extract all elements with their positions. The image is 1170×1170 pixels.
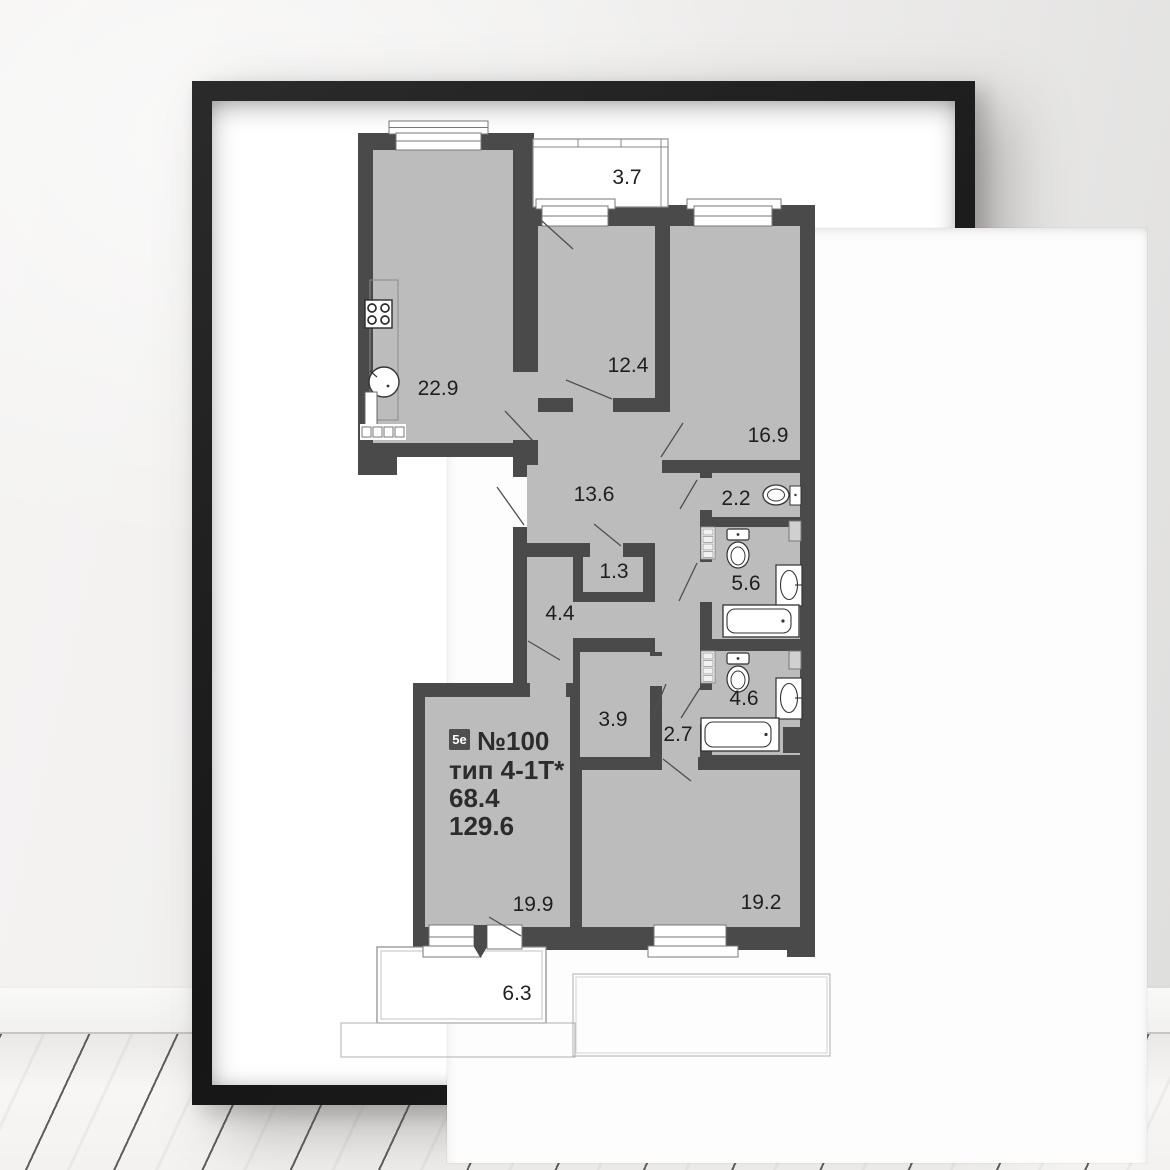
stove-icon <box>365 300 392 328</box>
area-living: 68.4 <box>449 783 500 813</box>
washbasin-icon <box>776 565 802 606</box>
vent-duct <box>789 651 801 669</box>
room-label-wardrobe: 3.9 <box>598 708 627 731</box>
kitchen-cabinets-icon <box>360 424 406 440</box>
floor-plan: 3.7 22.9 12.4 16.9 13.6 2.2 1.3 5.6 4.4 … <box>0 0 1170 1170</box>
toilet-icon <box>727 529 749 568</box>
washing-machine-icon <box>701 651 715 683</box>
room-label-bedroom-1: 12.4 <box>608 354 649 377</box>
room-label-bedroom-3: 19.9 <box>513 893 554 916</box>
room-label-storage: 1.3 <box>599 560 628 583</box>
vent-duct <box>789 521 801 541</box>
room-label-living-room: 19.2 <box>741 891 782 914</box>
room-label-bathroom-2: 4.6 <box>729 687 758 710</box>
shaft <box>783 727 801 753</box>
washing-machine-icon <box>701 527 715 559</box>
apartment-type: тип 4-1Т* <box>449 755 565 785</box>
floor-badge-label: 5е <box>452 732 466 747</box>
room-label-balcony-bottom: 6.3 <box>502 982 531 1005</box>
room-label-bedroom-2: 16.9 <box>748 424 789 447</box>
room-label-bathroom-1: 5.6 <box>731 572 760 595</box>
fridge-icon <box>365 392 377 428</box>
balcony-top <box>533 139 668 207</box>
wc-sink-icon <box>763 485 801 505</box>
bathtub-icon <box>701 718 779 751</box>
area-total: 129.6 <box>449 811 514 841</box>
room-label-hallway: 13.6 <box>574 483 615 506</box>
bathtub-icon <box>723 605 799 637</box>
washbasin-icon <box>776 678 802 719</box>
room-label-corridor: 4.4 <box>545 602 575 625</box>
room-label-balcony-top: 3.7 <box>612 166 641 189</box>
room-label-wc: 2.2 <box>721 487 750 510</box>
apartment-number: №100 <box>477 726 549 756</box>
room-label-corridor-2: 2.7 <box>663 723 692 746</box>
room-label-kitchen-living: 22.9 <box>418 377 459 400</box>
